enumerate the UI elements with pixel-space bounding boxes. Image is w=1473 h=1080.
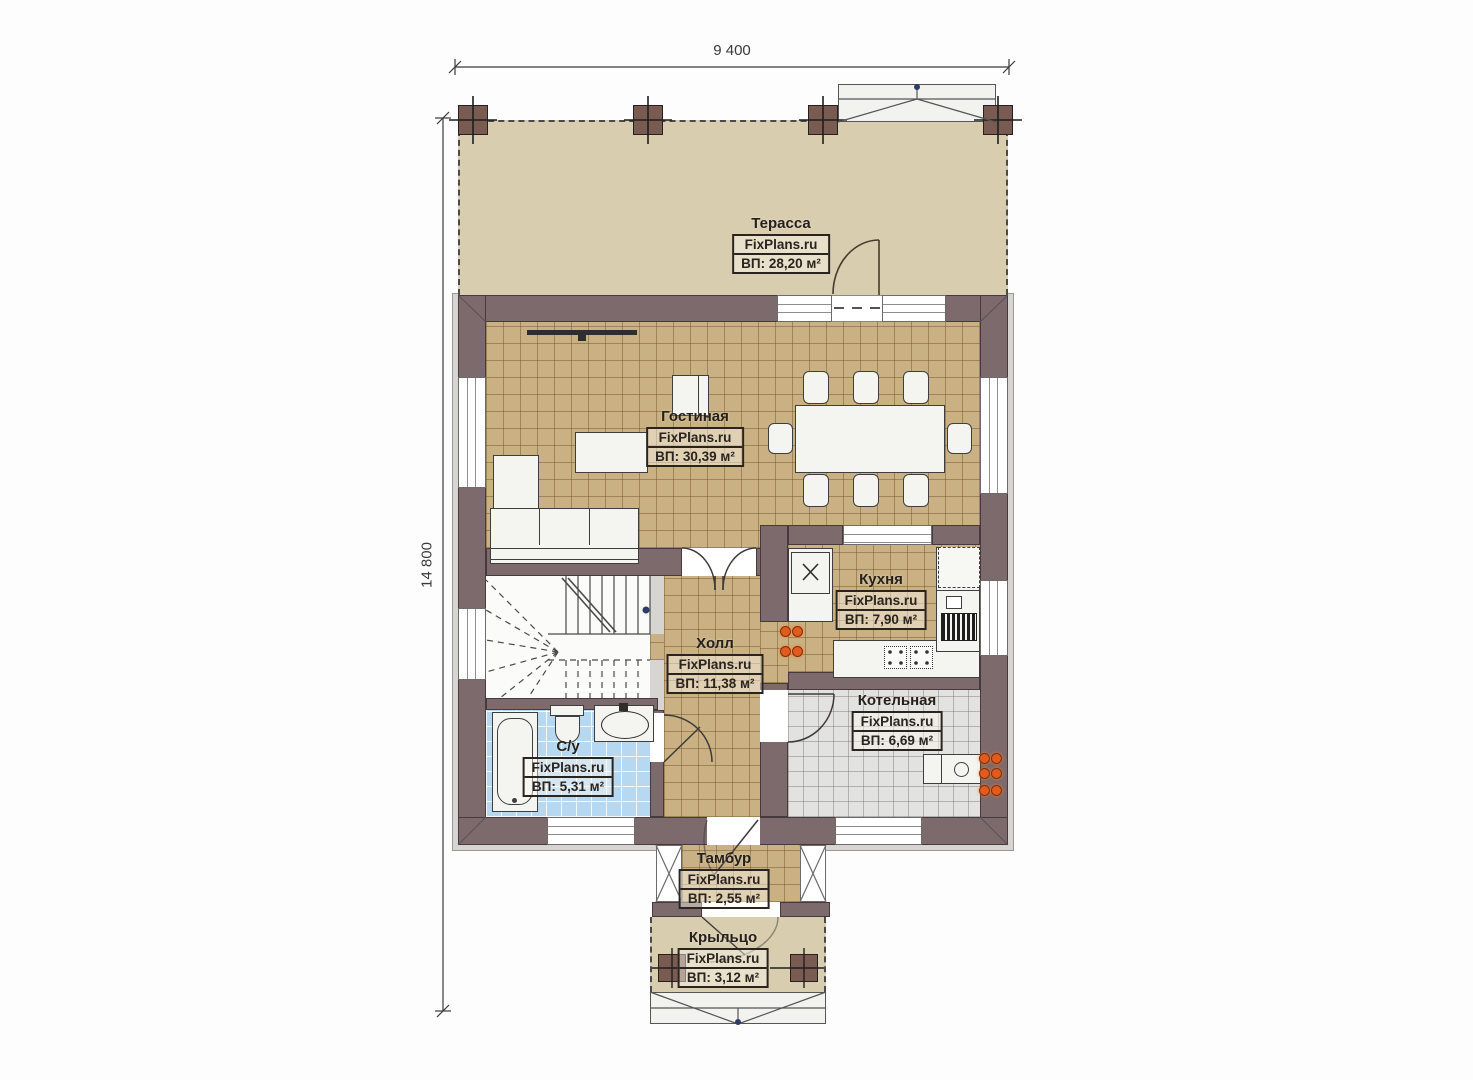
watermark-text: FixPlans.ru bbox=[648, 429, 742, 446]
exterior-steps-porch bbox=[650, 992, 826, 1024]
sofa-backrest bbox=[491, 548, 638, 560]
dimension-width-label: 9 400 bbox=[713, 42, 751, 59]
room-area: ВП: 28,20 м² bbox=[734, 253, 828, 272]
door-opening-boiler bbox=[760, 690, 788, 742]
bathroom-sink-tap bbox=[619, 703, 628, 711]
door-opening-terrace bbox=[832, 295, 882, 322]
floor-plan: 9 400 14 800 bbox=[0, 0, 1473, 1080]
utility-marker bbox=[991, 753, 1002, 764]
room-label-kitchen: Кухня FixPlans.ru ВП: 7,90 м² bbox=[836, 571, 927, 630]
room-label-box: FixPlans.ru ВП: 28,20 м² bbox=[732, 234, 830, 274]
dimension-width-line bbox=[449, 59, 1015, 75]
dining-chair bbox=[853, 371, 879, 404]
fridge bbox=[938, 547, 980, 588]
utility-marker bbox=[979, 785, 990, 796]
porch-column bbox=[790, 954, 818, 982]
room-area: ВП: 2,55 м² bbox=[681, 888, 768, 907]
terrace-column bbox=[983, 105, 1013, 135]
room-name: Гостиная bbox=[646, 408, 744, 425]
bathtub-drain bbox=[512, 798, 517, 803]
window-terrace-left bbox=[777, 295, 832, 322]
watermark-text: FixPlans.ru bbox=[681, 871, 768, 888]
terrace-column bbox=[458, 105, 488, 135]
dining-chair bbox=[768, 423, 793, 454]
tv-stand bbox=[578, 335, 586, 341]
watermark-text: FixPlans.ru bbox=[838, 592, 925, 609]
door-opening-living-hall bbox=[682, 548, 756, 576]
sink-faucet bbox=[946, 596, 962, 609]
boiler-equipment bbox=[923, 754, 981, 784]
utility-marker bbox=[792, 626, 803, 637]
toilet-tank bbox=[550, 705, 584, 716]
wall-vestibule-bottom-right bbox=[780, 902, 830, 917]
bathroom-sink-counter bbox=[594, 705, 654, 742]
window-left-living bbox=[458, 377, 486, 488]
room-name: Котельная bbox=[852, 692, 943, 709]
room-label-box: FixPlans.ru ВП: 3,12 м² bbox=[678, 948, 769, 988]
room-hall-floor bbox=[664, 576, 760, 817]
room-name: Холл bbox=[667, 635, 764, 652]
room-label-living: Гостиная FixPlans.ru ВП: 30,39 м² bbox=[646, 408, 744, 467]
room-label-porch: Крыльцо FixPlans.ru ВП: 3,12 м² bbox=[678, 929, 769, 988]
room-area: ВП: 3,12 м² bbox=[680, 967, 767, 986]
room-label-boiler: Котельная FixPlans.ru ВП: 6,69 м² bbox=[852, 692, 943, 751]
room-name: Кухня bbox=[836, 571, 927, 588]
sofa bbox=[490, 508, 639, 564]
room-label-box: FixPlans.ru ВП: 7,90 м² bbox=[836, 590, 927, 630]
dining-chair bbox=[903, 474, 929, 507]
dining-chair bbox=[903, 371, 929, 404]
room-area: ВП: 11,38 м² bbox=[669, 673, 762, 692]
room-label-box: FixPlans.ru ВП: 6,69 м² bbox=[852, 711, 943, 751]
sofa-cushion bbox=[540, 509, 589, 545]
dimension-height-label: 14 800 bbox=[419, 542, 436, 588]
wall-kitchen-top-b bbox=[932, 525, 980, 545]
watermark-text: FixPlans.ru bbox=[525, 759, 612, 776]
stove-burner bbox=[884, 646, 907, 669]
room-area: ВП: 6,69 м² bbox=[854, 730, 941, 749]
utility-marker bbox=[979, 768, 990, 779]
sink-drainer bbox=[941, 613, 977, 641]
room-label-terrace: Терасса FixPlans.ru ВП: 28,20 м² bbox=[732, 215, 830, 274]
room-name: Терасса bbox=[732, 215, 830, 232]
dining-chair bbox=[947, 423, 972, 454]
watermark-text: FixPlans.ru bbox=[669, 656, 762, 673]
sofa-cushions bbox=[491, 509, 638, 545]
dining-chair bbox=[803, 371, 829, 404]
watermark-text: FixPlans.ru bbox=[680, 950, 767, 967]
window-bottom-bathroom bbox=[547, 817, 635, 845]
room-label-hall: Холл FixPlans.ru ВП: 11,38 м² bbox=[667, 635, 764, 694]
window-vestibule-right bbox=[800, 845, 826, 902]
window-kitchen-serving bbox=[843, 525, 932, 545]
dining-chair bbox=[853, 474, 879, 507]
watermark-text: FixPlans.ru bbox=[734, 236, 828, 253]
room-label-box: FixPlans.ru ВП: 5,31 м² bbox=[523, 757, 614, 797]
room-name: С/у bbox=[523, 738, 614, 755]
room-label-bathroom: С/у FixPlans.ru ВП: 5,31 м² bbox=[523, 738, 614, 797]
window-right-living bbox=[980, 377, 1008, 494]
coffee-table bbox=[575, 432, 648, 473]
window-left-stairs bbox=[458, 608, 486, 680]
room-label-box: FixPlans.ru ВП: 11,38 м² bbox=[667, 654, 764, 694]
room-area: ВП: 30,39 м² bbox=[648, 446, 742, 465]
room-label-vestibule: Тамбур FixPlans.ru ВП: 2,55 м² bbox=[679, 850, 770, 909]
kitchen-hob bbox=[791, 552, 830, 594]
utility-marker bbox=[780, 626, 791, 637]
kitchen-sink-unit bbox=[936, 590, 980, 652]
sofa-cushion bbox=[590, 509, 638, 545]
room-label-box: FixPlans.ru ВП: 30,39 м² bbox=[646, 427, 744, 467]
utility-marker bbox=[991, 785, 1002, 796]
wall-kitchen-top-a bbox=[788, 525, 843, 545]
utility-marker bbox=[780, 646, 791, 657]
bathroom-sink-bowl bbox=[601, 711, 649, 739]
terrace-column bbox=[808, 105, 838, 135]
utility-marker bbox=[979, 753, 990, 764]
boiler-burner-circle bbox=[954, 762, 969, 777]
terrace-column bbox=[633, 105, 663, 135]
room-name: Тамбур bbox=[679, 850, 770, 867]
window-right-kitchen bbox=[980, 580, 1008, 656]
dimension-height-line bbox=[435, 112, 451, 1017]
room-name: Крыльцо bbox=[678, 929, 769, 946]
room-label-box: FixPlans.ru ВП: 2,55 м² bbox=[679, 869, 770, 909]
room-area: ВП: 7,90 м² bbox=[838, 609, 925, 628]
wall-kitchen-left bbox=[760, 525, 788, 622]
dining-chair bbox=[803, 474, 829, 507]
door-opening-front bbox=[707, 817, 760, 845]
room-area: ВП: 5,31 м² bbox=[525, 776, 612, 795]
boiler-equipment-divider bbox=[941, 755, 942, 783]
utility-marker bbox=[991, 768, 1002, 779]
window-bottom-boiler bbox=[835, 817, 922, 845]
utility-marker bbox=[792, 646, 803, 657]
dining-table bbox=[795, 405, 945, 473]
window-terrace-right bbox=[882, 295, 946, 322]
watermark-text: FixPlans.ru bbox=[854, 713, 941, 730]
exterior-steps-top bbox=[838, 84, 996, 122]
sofa-cushion bbox=[491, 509, 540, 545]
staircase-floor bbox=[486, 576, 650, 698]
stove-burner bbox=[910, 646, 933, 669]
